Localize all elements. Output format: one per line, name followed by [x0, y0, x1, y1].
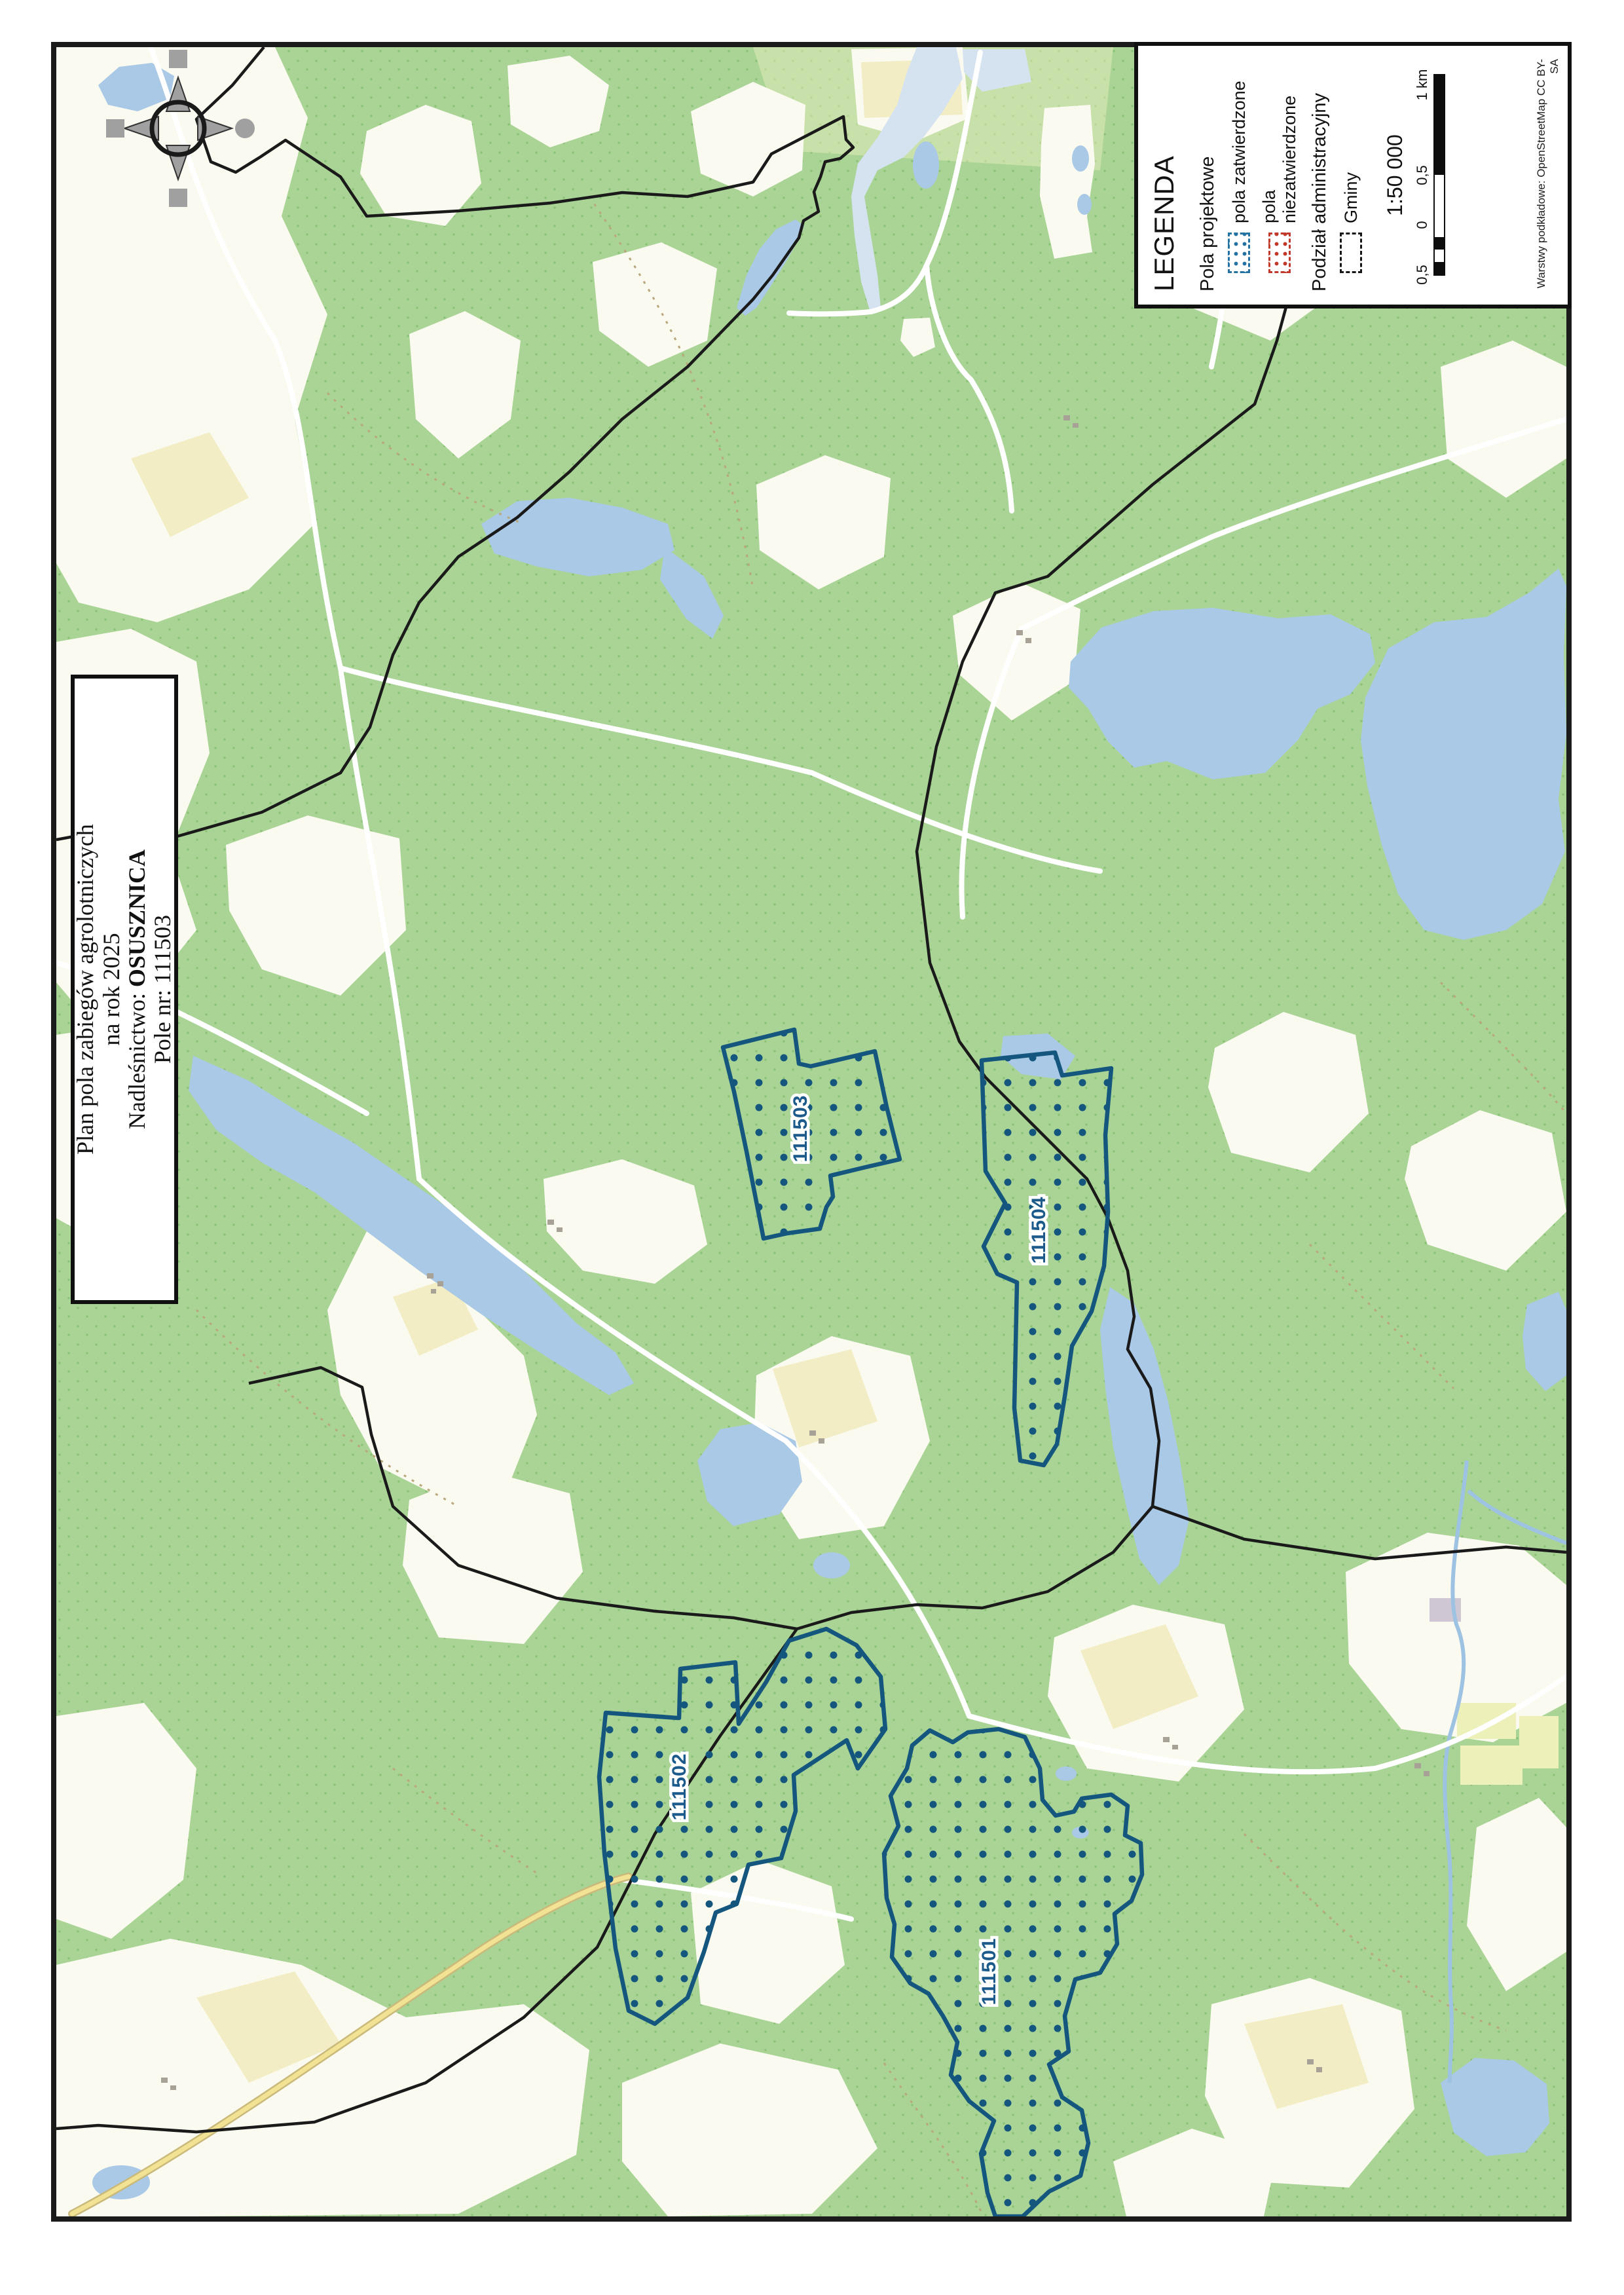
- legend-content: LEGENDA Pola projektowe pola zatwierdzon…: [1138, 46, 1568, 305]
- scalebar: 0,5 0 0,5 1 km: [1414, 75, 1456, 276]
- map-canvas: 111503 111504 111502 111501: [56, 47, 1566, 2216]
- legend: LEGENDA Pola projektowe pola zatwierdzon…: [1134, 42, 1572, 308]
- scanned-map-sheet: 111503 111504 111502 111501 Pl: [0, 0, 1624, 2295]
- legend-group-admin: Podział administracyjny: [1309, 59, 1331, 291]
- nadlesnictwo-value: OSUSZNICA: [124, 849, 150, 987]
- field-label-111503: 111503: [790, 1095, 811, 1163]
- field-label-111502: 111502: [669, 1753, 690, 1821]
- basemap-attribution: Warstwy podkładowe: OpenStreetMap CC BY-…: [1535, 59, 1561, 291]
- gminy-label: Gminy: [1341, 172, 1361, 223]
- map-title-line2: na rok 2025: [100, 679, 124, 1300]
- title-box-content: Plan pola zabiegów agrolotniczych na rok…: [75, 679, 174, 1300]
- field-label-111504: 111504: [1028, 1197, 1050, 1264]
- legend-item-gminy: Gminy: [1340, 59, 1362, 273]
- map-frame: 111503 111504 111502 111501: [51, 42, 1572, 2222]
- scalebar-label-2: 0,5: [1414, 165, 1431, 185]
- map-scale: 1:50 000: [1383, 59, 1407, 291]
- approved-fields-swatch-icon: [1228, 233, 1250, 273]
- legend-item-approved: pola zatwierdzone: [1228, 59, 1250, 273]
- field-label-111501: 111501: [978, 1938, 1000, 2006]
- scalebar-label-0: 0,5: [1414, 265, 1431, 285]
- unapproved-fields-label: pola niezatwierdzone: [1259, 59, 1300, 223]
- legend-group-fields: Pola projektowe: [1197, 59, 1219, 291]
- legend-title: LEGENDA: [1149, 59, 1180, 291]
- unapproved-fields-swatch-icon: [1268, 233, 1291, 273]
- map-title-line1: Plan pola zabiegów agrolotniczych: [73, 679, 98, 1300]
- scalebar-bar: [1433, 75, 1445, 276]
- map-title-line3: Nadleśnictwo: OSUSZNICA: [125, 679, 149, 1300]
- approved-fields-label: pola zatwierdzone: [1229, 81, 1249, 223]
- nadlesnictwo-label: Nadleśnictwo:: [124, 993, 150, 1129]
- scalebar-labels: 0,5 0 0,5 1 km: [1414, 75, 1431, 276]
- scalebar-label-1: 0: [1414, 221, 1431, 229]
- title-box: Plan pola zabiegów agrolotniczych na rok…: [71, 675, 178, 1304]
- scalebar-label-3: 1 km: [1414, 69, 1431, 101]
- legend-item-unapproved: pola niezatwierdzone: [1259, 59, 1300, 273]
- map-title-line4: Pole nr: 111503: [151, 679, 175, 1300]
- gminy-swatch-icon: [1340, 233, 1362, 273]
